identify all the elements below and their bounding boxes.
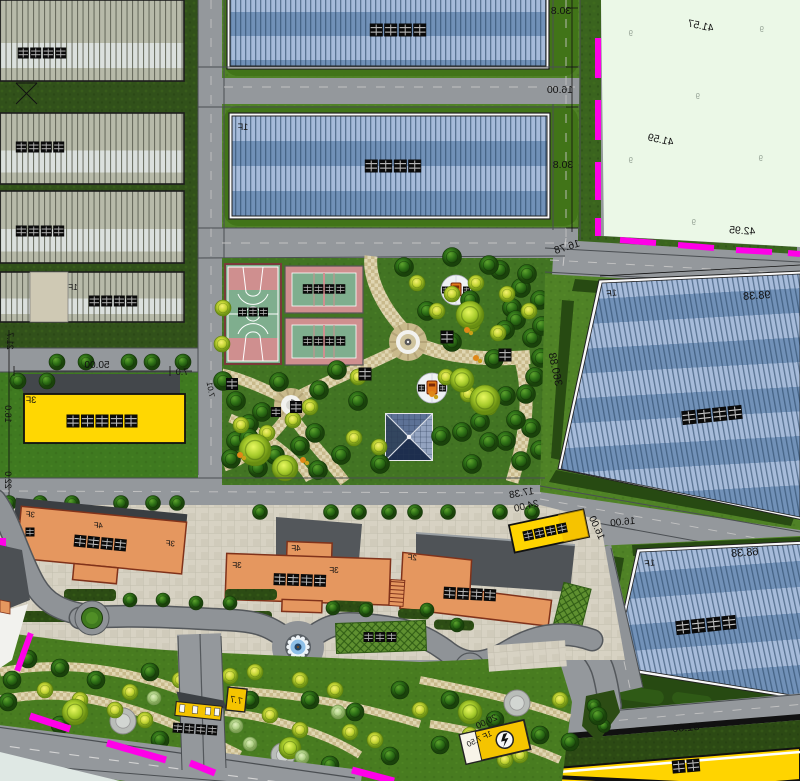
svg-text:9: 9 (758, 154, 763, 163)
svg-text:3F: 3F (165, 539, 175, 549)
svg-text:3F: 3F (232, 561, 241, 570)
svg-text:2F: 2F (407, 553, 417, 563)
svg-text:50.00: 50.00 (84, 360, 109, 371)
svg-text:3F: 3F (329, 566, 338, 575)
svg-text:42.95: 42.95 (729, 224, 756, 238)
svg-text:16.0: 16.0 (3, 405, 13, 423)
svg-text:1F: 1F (643, 557, 655, 568)
svg-text:1F: 1F (68, 283, 77, 292)
svg-text:22.0: 22.0 (3, 471, 13, 489)
svg-text:30.8: 30.8 (551, 5, 572, 17)
svg-text:9: 9 (759, 25, 764, 34)
svg-text:4F: 4F (93, 521, 103, 531)
svg-text:16.00: 16.00 (547, 84, 573, 96)
svg-text:3F: 3F (25, 510, 35, 520)
svg-text:98.38: 98.38 (743, 289, 771, 303)
svg-text:81.00: 81.00 (672, 721, 700, 735)
svg-text:30.8: 30.8 (553, 159, 574, 171)
svg-text:9: 9 (695, 92, 700, 101)
svg-text:1F: 1F (605, 287, 617, 298)
svg-text:3F: 3F (25, 395, 36, 405)
svg-text:4F: 4F (291, 544, 300, 553)
svg-text:7.0: 7.0 (176, 367, 189, 377)
svg-text:9: 9 (628, 156, 633, 165)
svg-text:21.7: 21.7 (5, 332, 15, 350)
svg-text:1F: 1F (237, 122, 248, 132)
svg-text:9: 9 (691, 218, 696, 227)
svg-text:9: 9 (628, 29, 633, 38)
svg-text:68.38: 68.38 (731, 546, 759, 560)
